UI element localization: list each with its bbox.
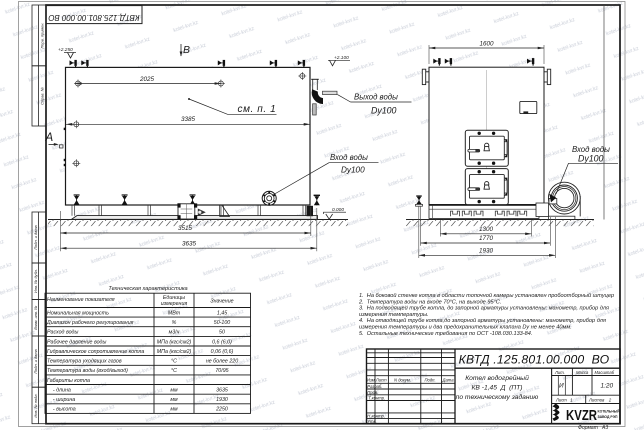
svg-text:1. На боковой стенке котла в: 1. На боковой стенке котла в области топ… bbox=[359, 292, 614, 299]
svg-text:Дата: Дата bbox=[442, 378, 455, 383]
svg-text:3635: 3635 bbox=[216, 387, 228, 393]
svg-text:м3/ч: м3/ч bbox=[169, 330, 180, 336]
svg-text:Значение: Значение bbox=[210, 299, 233, 305]
svg-text:МПа (кгс/см2): МПа (кгс/см2) bbox=[157, 349, 192, 355]
svg-text:1930: 1930 bbox=[479, 248, 494, 255]
svg-text:МВт: МВт bbox=[168, 310, 181, 316]
svg-text:KVZR: KVZR bbox=[566, 408, 597, 424]
svg-text:Наименование показателя: Наименование показателя bbox=[47, 297, 115, 303]
svg-text:70/95: 70/95 bbox=[215, 368, 228, 374]
svg-text:Номинальная мощность: Номинальная мощность bbox=[47, 310, 109, 316]
svg-text:50-100: 50-100 bbox=[214, 320, 231, 326]
svg-text:Взам. инв. №: Взам. инв. № bbox=[33, 305, 38, 330]
svg-text:1930: 1930 bbox=[216, 397, 228, 403]
svg-text:Температура воды (вход/выход): Температура воды (вход/выход) bbox=[47, 368, 128, 374]
svg-text:Dy100: Dy100 bbox=[341, 166, 365, 175]
svg-text:N докум.: N докум. bbox=[394, 378, 411, 383]
svg-text:0,6 (6,0): 0,6 (6,0) bbox=[212, 339, 232, 345]
svg-text:4. На отводящей трубе котла,д: 4. На отводящей трубе котла,до запорной … bbox=[359, 317, 606, 324]
svg-text:Подп. и дата: Подп. и дата bbox=[33, 348, 38, 373]
svg-text:Габариты котла: Габариты котла bbox=[47, 378, 90, 384]
svg-text:Dy100: Dy100 bbox=[371, 106, 397, 116]
svg-text:2250: 2250 bbox=[215, 407, 228, 413]
svg-text:Изм.Лист: Изм.Лист bbox=[367, 378, 387, 383]
svg-text:измерения температуры.: измерения температуры. bbox=[359, 312, 429, 318]
svg-text:Масштаб: Масштаб bbox=[595, 370, 615, 375]
svg-text:1:20: 1:20 bbox=[601, 383, 614, 390]
svg-text:3385: 3385 bbox=[181, 116, 196, 123]
svg-text:0,06 (0,6): 0,06 (0,6) bbox=[211, 349, 234, 355]
svg-text:Инв. № подл.: Инв. № подл. bbox=[33, 393, 38, 417]
svg-text:Формат А3: Формат А3 bbox=[578, 425, 608, 430]
svg-text:%: % bbox=[172, 320, 177, 326]
svg-text:1770: 1770 bbox=[479, 235, 494, 242]
svg-text:измерения: измерения bbox=[161, 301, 188, 307]
svg-text:Вход воды: Вход воды bbox=[330, 153, 368, 162]
svg-text:мм: мм bbox=[170, 397, 178, 403]
svg-text:- длина: - длина bbox=[47, 387, 71, 393]
svg-text:+2.250: +2.250 bbox=[58, 47, 73, 53]
svg-text:Лит.: Лит. bbox=[554, 370, 565, 375]
svg-text:по техническому заданию: по техническому заданию bbox=[456, 393, 539, 401]
svg-text:Лист 1: Лист 1 bbox=[555, 398, 573, 403]
svg-text:3. На подводящей трубе котла,: 3. На подводящей трубе котла, до запорно… bbox=[359, 305, 609, 312]
svg-text:Подп. и дата: Подп. и дата bbox=[33, 224, 38, 249]
svg-text:1,45: 1,45 bbox=[217, 310, 227, 316]
svg-text:3635: 3635 bbox=[182, 240, 197, 247]
svg-text:не более 220: не более 220 bbox=[206, 359, 238, 365]
svg-text:- высота: - высота bbox=[47, 407, 76, 413]
svg-text:Расход воды: Расход воды bbox=[47, 330, 78, 336]
svg-text:Н.контр.: Н.контр. bbox=[367, 414, 385, 419]
svg-text:50: 50 bbox=[219, 330, 225, 336]
svg-text:КОТЕЛЬНЫЙ: КОТЕЛЬНЫЙ bbox=[598, 410, 621, 414]
svg-text:Пров.: Пров. bbox=[367, 390, 378, 395]
svg-text:Техническая характеристика: Техническая характеристика bbox=[108, 286, 187, 292]
svg-text:КВТД .125.801.00.000 ВО: КВТД .125.801.00.000 ВО bbox=[459, 353, 610, 367]
svg-text:Подп.: Подп. bbox=[425, 378, 436, 383]
svg-text:Выход воды: Выход воды bbox=[354, 93, 398, 102]
svg-text:мм: мм bbox=[170, 407, 178, 413]
svg-text:5. Остальные технические треб: 5. Остальные технические требования по О… bbox=[359, 331, 532, 337]
svg-text:В: В bbox=[183, 44, 190, 56]
svg-text:Гидравлическое сопротивление к: Гидравлическое сопротивление котла bbox=[47, 349, 144, 355]
svg-text:Рабочее давление воды: Рабочее давление воды bbox=[47, 339, 106, 345]
svg-text:1600: 1600 bbox=[479, 40, 494, 47]
svg-text:2. Температура воды на входе: 2. Температура воды на входе 70°С, на вы… bbox=[358, 299, 501, 305]
svg-text:Утв.: Утв. bbox=[367, 419, 377, 424]
svg-text:КВ -1,45 Д (ПТ): КВ -1,45 Д (ПТ) bbox=[471, 385, 522, 392]
svg-text:Котел водогрейный: Котел водогрейный bbox=[465, 374, 529, 382]
svg-text:И: И bbox=[559, 383, 564, 390]
svg-text:Масса: Масса bbox=[576, 370, 589, 375]
svg-text:ЗАВОД РЭП: ЗАВОД РЭП bbox=[598, 415, 619, 419]
svg-text:мм: мм bbox=[170, 387, 178, 393]
svg-text:3515: 3515 bbox=[178, 225, 193, 232]
svg-text:А: А bbox=[45, 132, 54, 144]
svg-text:измерения температуры и два пр: измерения температуры и два предохраните… bbox=[359, 325, 572, 331]
svg-text:Т.контр.: Т.контр. bbox=[368, 396, 385, 401]
svg-text:+2.100: +2.100 bbox=[334, 55, 349, 61]
svg-text:Разраб.: Разраб. bbox=[367, 384, 382, 389]
svg-text:Инв. № дубл.: Инв. № дубл. bbox=[33, 269, 38, 293]
svg-text:1300: 1300 bbox=[479, 226, 494, 233]
svg-text:2025: 2025 bbox=[139, 76, 155, 83]
svg-text:Перв. примен.: Перв. примен. bbox=[40, 23, 45, 49]
svg-text:Диапазон рабочего регулировани: Диапазон рабочего регулирования bbox=[46, 320, 134, 326]
svg-text:см. п. 1: см. п. 1 bbox=[238, 104, 277, 115]
svg-text:°С: °С bbox=[171, 368, 177, 374]
svg-text:КВТД.125.801.00.000 ВО: КВТД.125.801.00.000 ВО bbox=[48, 13, 139, 22]
svg-text:МПа (кгс/см2): МПа (кгс/см2) bbox=[157, 339, 192, 345]
svg-text:°С: °С bbox=[171, 359, 177, 365]
svg-text:- ширина: - ширина bbox=[47, 397, 75, 403]
svg-text:Листов 2: Листов 2 bbox=[588, 398, 612, 403]
svg-text:Dy100: Dy100 bbox=[578, 154, 604, 164]
svg-text:Температура уходящих газов: Температура уходящих газов bbox=[47, 359, 122, 365]
svg-text:Справ. №: Справ. № bbox=[40, 86, 45, 104]
